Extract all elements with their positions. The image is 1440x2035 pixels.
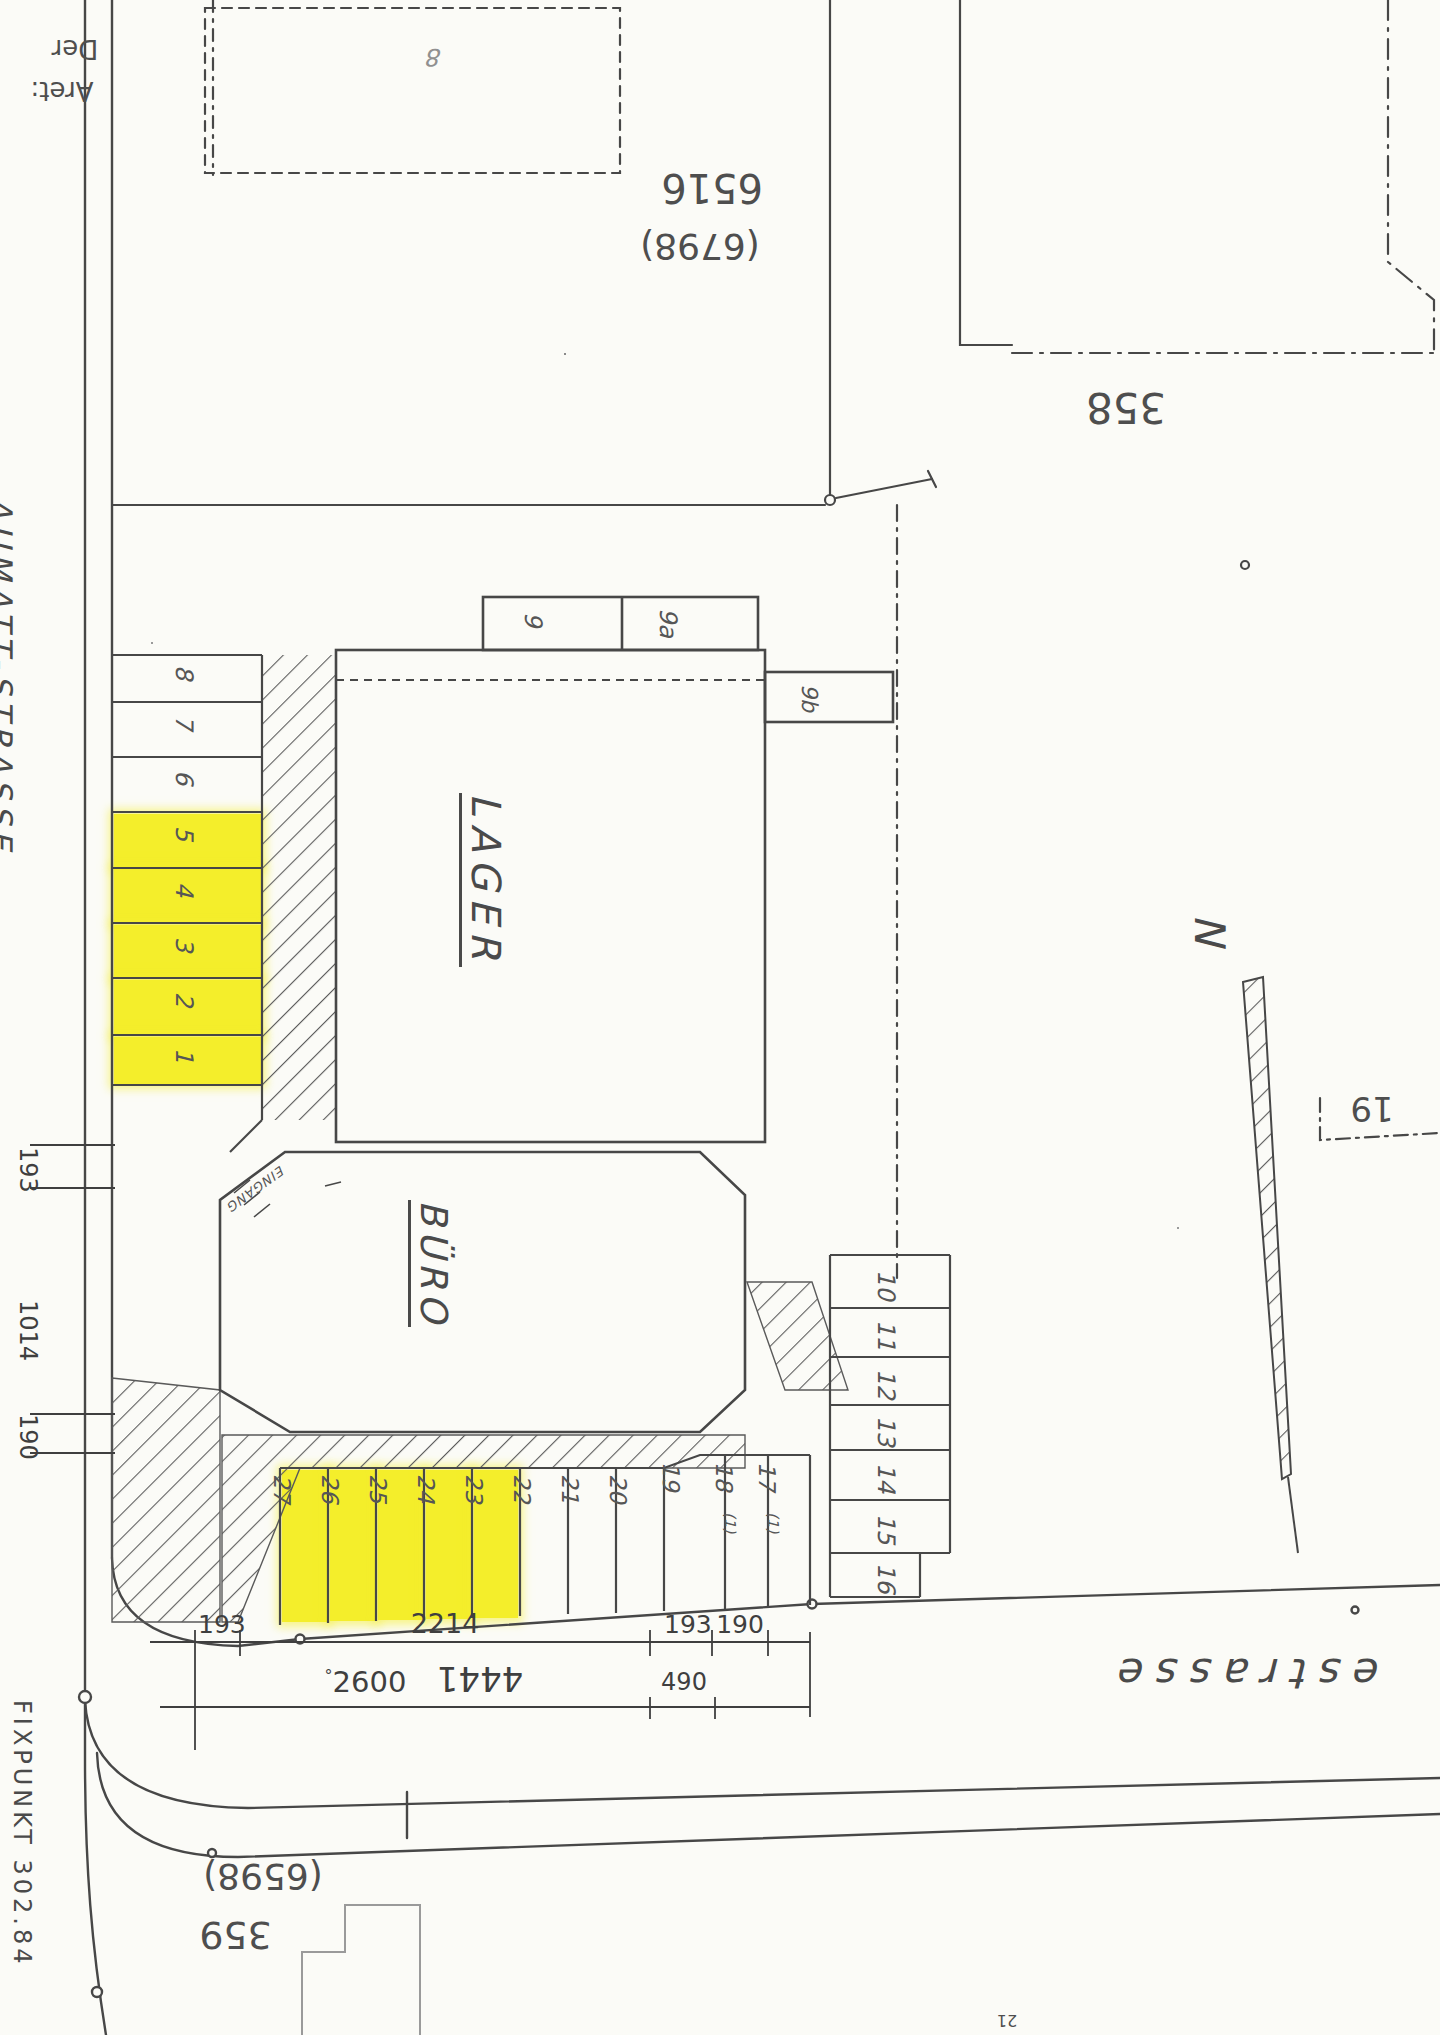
corner-note-line1: Der [50,36,100,62]
stall-label-left-6: 6 [172,770,196,785]
dim-4441: 4441 [425,1662,535,1696]
parcel-number-21: 21 [992,2012,1022,2028]
stall-label-left-5: 5 [172,826,196,841]
stall-label-10: 10 [874,1270,898,1301]
stall-label-26: 26 [318,1474,341,1503]
stall-label-15: 15 [874,1514,898,1545]
stall-label-left-3: 3 [172,937,196,952]
stall-label-23: 23 [462,1474,485,1503]
stall-label-left-7: 7 [172,715,196,730]
stall-label-17: 17 [755,1462,778,1491]
site-plan-scan: AUMATT-STRASSE Der Aret: 8 6516 (6798) 3… [0,0,1440,2035]
stall-label-25: 25 [366,1474,389,1503]
stall-label-12: 12 [874,1369,898,1400]
stall-label-19: 19 [659,1462,682,1491]
dim-2214: 2214 [405,1610,485,1637]
stall-label-22: 22 [510,1474,533,1503]
dim-1014-street: 1014 [16,1300,40,1361]
parcel-number-19: 19 [1348,1092,1396,1126]
stall-label-left-2: 2 [172,992,196,1007]
fixpoint-label: FIXPUNKT 302.84 [10,1700,34,1967]
stall-label-13: 13 [874,1416,898,1447]
parcel-number-6798: (6798) [630,228,770,264]
building-label-buero: BÜRO [408,1200,452,1327]
stall-label-16: 16 [874,1563,898,1594]
shed-note: 8 [415,45,455,69]
street-name-aumattstrasse: AUMATT-STRASSE [0,497,16,855]
lager-building [336,597,893,1142]
building-label-lager: LAGER [459,793,506,967]
stall-note-17: (1) [765,1512,780,1533]
stall-label-left-8: 8 [172,665,196,680]
stall-label-9: 9 [521,612,545,627]
dim-190-bottom: 190 [716,1612,764,1637]
dim-190-street: 190 [16,1414,40,1460]
street-name-estrasse: estrasse [1080,1652,1410,1694]
stall-label-27: 27 [270,1474,293,1503]
stall-label-left-1: 1 [172,1048,196,1063]
plan-linework [0,0,1440,2035]
dim-193-left: 193 [198,1612,242,1637]
stall-label-18: 18 [712,1462,735,1491]
stall-label-9b: 9b [798,684,820,712]
stall-note-18: (1) [722,1512,737,1533]
stall-label-9a: 9a [656,608,680,638]
north-label: N [1188,914,1230,945]
survey-mark: ° [325,1666,333,1685]
stall-label-11: 11 [874,1320,898,1351]
neighbor-outline-bottom [302,1905,420,2035]
stall-label-21: 21 [558,1474,581,1503]
dim-2600: °2600 [318,1668,413,1697]
stall-label-20: 20 [606,1474,629,1503]
parcel-number-6516: 6516 [668,168,763,208]
buero-building [220,1152,745,1432]
dim-490: 490 [660,1670,708,1694]
stall-label-left-4: 4 [172,882,196,897]
dim-193-right: 193 [664,1612,708,1637]
parcel-number-6598: (6598) [178,1858,348,1894]
parcel-number-359: 359 [188,1916,283,1954]
stall-label-14: 14 [874,1463,898,1494]
dim-2600-value: 2600 [333,1665,407,1699]
north-arrow-needle [1243,977,1298,1553]
dim-193-street: 193 [16,1147,40,1193]
corner-note-line2: Aret: [18,78,106,104]
stall-label-24: 24 [414,1474,437,1503]
parcel-number-358: 358 [1076,386,1176,428]
